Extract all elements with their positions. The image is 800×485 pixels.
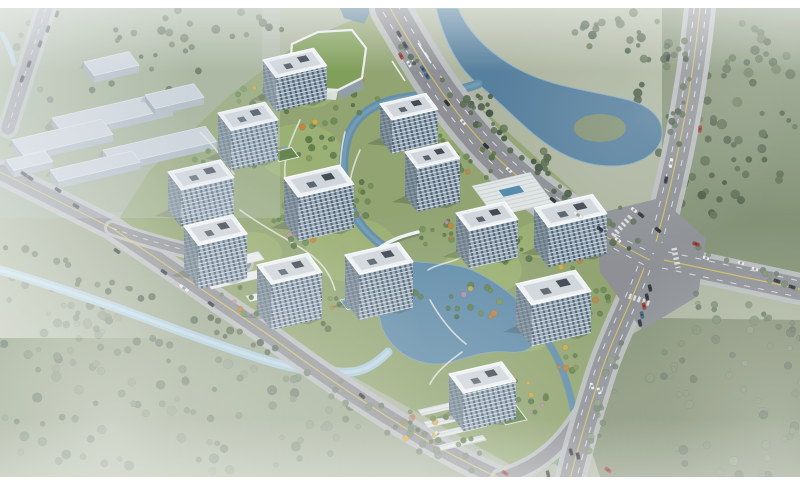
masterplan-aerial-image [0, 0, 800, 485]
haze-tint [0, 8, 800, 477]
atmospheric-haze [0, 0, 800, 485]
aerial-render-stage [0, 0, 800, 485]
frame-bottom [0, 477, 800, 485]
frame-top [0, 0, 800, 8]
